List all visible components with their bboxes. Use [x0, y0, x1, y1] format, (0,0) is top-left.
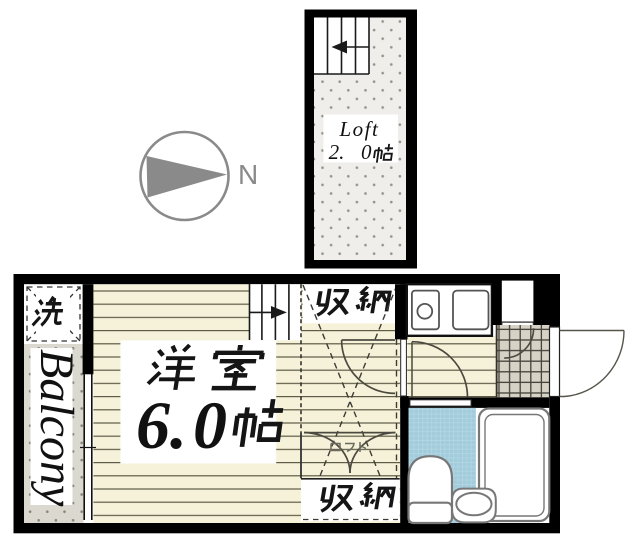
svg-text:6.: 6. [136, 387, 187, 463]
svg-text:N: N [238, 159, 258, 190]
svg-text:Balcony: Balcony [30, 349, 83, 507]
svg-text:2.: 2. [329, 140, 345, 164]
svg-text:Loft: Loft [339, 117, 380, 141]
svg-text:0: 0 [361, 140, 372, 164]
svg-text:0: 0 [193, 387, 227, 463]
